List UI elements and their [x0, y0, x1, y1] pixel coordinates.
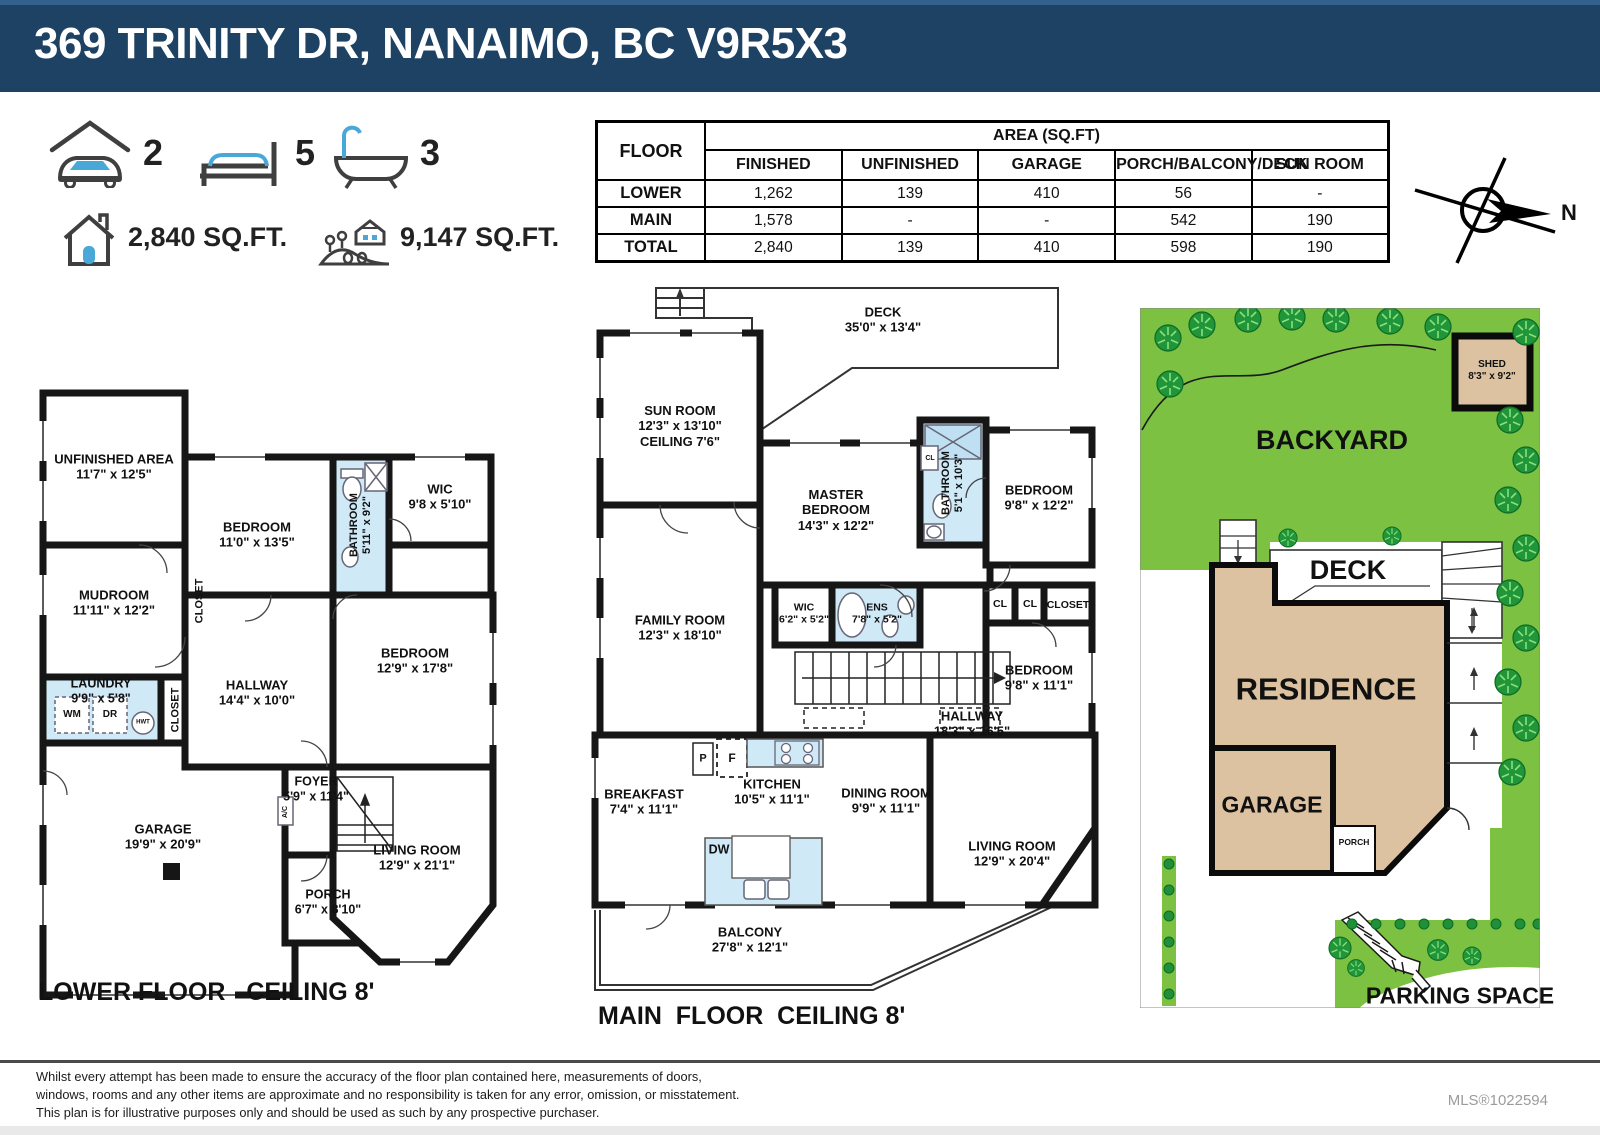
garage-icon [46, 116, 134, 188]
room-label: ENS7'8" x 5'2" [852, 602, 902, 627]
cell: 2,840 [705, 234, 842, 262]
bath-count: 3 [420, 132, 440, 174]
room-label: DR [103, 709, 117, 721]
cell: 139 [842, 234, 979, 262]
bed-count: 5 [295, 132, 315, 174]
cell: 410 [978, 180, 1115, 207]
room-label: SUN ROOM12'3" x 13'10"CEILING 7'6" [638, 403, 722, 449]
backyard-label: BACKYARD [1256, 425, 1408, 457]
room-label: BEDROOM11'0" x 13'5" [219, 520, 295, 551]
room-label: CL [1023, 598, 1037, 610]
room-label: BEDROOM12'9" x 17'8" [377, 646, 453, 677]
col-garage: GARAGE [978, 150, 1115, 180]
room-label: LIVING ROOM12'9" x 21'1" [373, 843, 460, 874]
cell: 56 [1115, 180, 1252, 207]
room-label: UNFINISHED AREA11'7" x 12'5" [54, 452, 173, 483]
bath-icon [328, 118, 414, 192]
garage-label: GARAGE [1222, 791, 1323, 818]
room-label: BATHROOM5'1" x 10'3" [940, 451, 966, 515]
room-label: BALCONY27'8" x 12'1" [712, 925, 788, 956]
compass-icon: N [1405, 148, 1590, 273]
site-plan: SHED8'3" x 9'2"BACKYARDDECKRESIDENCEGARA… [1140, 308, 1540, 1008]
room-label: WIC6'2" x 5'2" [779, 602, 829, 627]
cell: 410 [978, 234, 1115, 262]
porch-label: PORCH [1339, 837, 1370, 847]
footer-divider [0, 1060, 1600, 1063]
garage-count: 2 [143, 132, 163, 174]
disclaimer: Whilst every attempt has been made to en… [36, 1068, 739, 1122]
room-label: PORCH6'7" x 8'10" [295, 887, 361, 917]
room-label: FOYER5'9" x 11'4" [283, 774, 349, 804]
lower-floor-plan: UNFINISHED AREA11'7" x 12'5"BEDROOM11'0"… [35, 385, 525, 1010]
col-porch: PORCH/BALCONY/DECK [1115, 150, 1252, 180]
room-label: HALLWAY14'4" x 10'0" [219, 678, 295, 709]
col-finished: FINISHED [705, 150, 842, 180]
col-unfinished: UNFINISHED [842, 150, 979, 180]
room-label: MUDROOM11'11" x 12'2" [73, 588, 155, 619]
main-floor-caption: MAIN FLOOR CEILING 8' [598, 1002, 905, 1031]
room-label: CLOSET [194, 579, 207, 624]
table-row: TOTAL 2,840 139 410 598 190 [597, 234, 1389, 262]
header-bar: 369 TRINITY DR, NANAIMO, BC V9R5X3 [0, 0, 1600, 92]
room-label: WM [63, 709, 81, 721]
bottom-strip [0, 1126, 1600, 1135]
residence-label: RESIDENCE [1236, 672, 1417, 709]
room-label: CL [993, 598, 1007, 610]
disclaimer-line: windows, rooms and any other items are a… [36, 1086, 739, 1104]
cell: - [1252, 180, 1389, 207]
room-label: BEDROOM9'8" x 11'1" [1005, 663, 1073, 694]
room-label: HALLWAY18'3" x 16'5" [934, 709, 1010, 740]
house-icon [58, 208, 120, 268]
row-lower: LOWER [597, 180, 706, 207]
deck-label: DECK [1310, 555, 1387, 587]
disclaimer-line: This plan is for illustrative purposes o… [36, 1104, 739, 1122]
cell: - [978, 207, 1115, 234]
room-label: GARAGE19'9" x 20'9" [125, 822, 201, 853]
room-label: A/C [282, 806, 290, 818]
lot-sqft: 9,147 SQ.FT. [400, 222, 559, 253]
mls-number: MLS®1022594 [1448, 1092, 1548, 1109]
room-label: DW [709, 843, 730, 858]
cell: 139 [842, 180, 979, 207]
room-label: LIVING ROOM12'9" x 20'4" [968, 839, 1055, 870]
room-label: BREAKFAST7'4" x 11'1" [604, 787, 683, 818]
room-label: FAMILY ROOM12'3" x 18'10" [635, 613, 725, 644]
area-table: FLOOR AREA (SQ.FT) FINISHED UNFINISHED G… [595, 120, 1390, 263]
shed-label: SHED8'3" x 9'2" [1468, 359, 1516, 383]
room-label: LAUNDRY9'9" x 5'8" [71, 676, 132, 706]
cell: 1,578 [705, 207, 842, 234]
cell: 542 [1115, 207, 1252, 234]
compass-n-label: N [1561, 200, 1577, 226]
room-label: CLOSET [170, 688, 183, 733]
room-label: DECK35'0" x 13'4" [845, 305, 921, 336]
room-label: BEDROOM9'8" x 12'2" [1004, 483, 1073, 514]
cell: 1,262 [705, 180, 842, 207]
row-total: TOTAL [597, 234, 706, 262]
lower-floor-caption: LOWER FLOOR CEILING 8' [38, 978, 375, 1007]
lot-icon [318, 210, 392, 268]
disclaimer-line: Whilst every attempt has been made to en… [36, 1068, 739, 1086]
house-sqft: 2,840 SQ.FT. [128, 222, 287, 253]
row-main: MAIN [597, 207, 706, 234]
bed-icon [196, 128, 284, 190]
area-header: AREA (SQ.FT) [705, 122, 1389, 151]
room-label: CLOSET [1047, 599, 1090, 611]
table-row: LOWER 1,262 139 410 56 - [597, 180, 1389, 207]
room-label: MASTERBEDROOM14'3" x 12'2" [798, 487, 874, 533]
parking-label: PARKING SPACE [1366, 982, 1554, 1009]
room-label: F [728, 751, 735, 765]
cell: 190 [1252, 207, 1389, 234]
room-label: DINING ROOM9'9" x 11'1" [841, 786, 931, 817]
cell: - [842, 207, 979, 234]
room-label: WIC9'8 x 5'10" [409, 482, 472, 513]
table-row: MAIN 1,578 - - 542 190 [597, 207, 1389, 234]
page-title: 369 TRINITY DR, NANAIMO, BC V9R5X3 [0, 5, 1600, 69]
floorplan-sheet: 369 TRINITY DR, NANAIMO, BC V9R5X3 2 5 3 [0, 0, 1600, 1135]
main-floor-plan: DECK35'0" x 13'4"SUN ROOM12'3" x 13'10"C… [580, 278, 1110, 1038]
room-label: BATHROOM5'11" x 9'2" [348, 493, 374, 557]
cell: 598 [1115, 234, 1252, 262]
room-label: CL [925, 455, 934, 463]
floor-header: FLOOR [597, 122, 706, 181]
room-label: HWT [136, 719, 150, 726]
room-label: KITCHEN10'5" x 11'1" [734, 777, 810, 808]
room-label: P [699, 753, 706, 766]
cell: 190 [1252, 234, 1389, 262]
